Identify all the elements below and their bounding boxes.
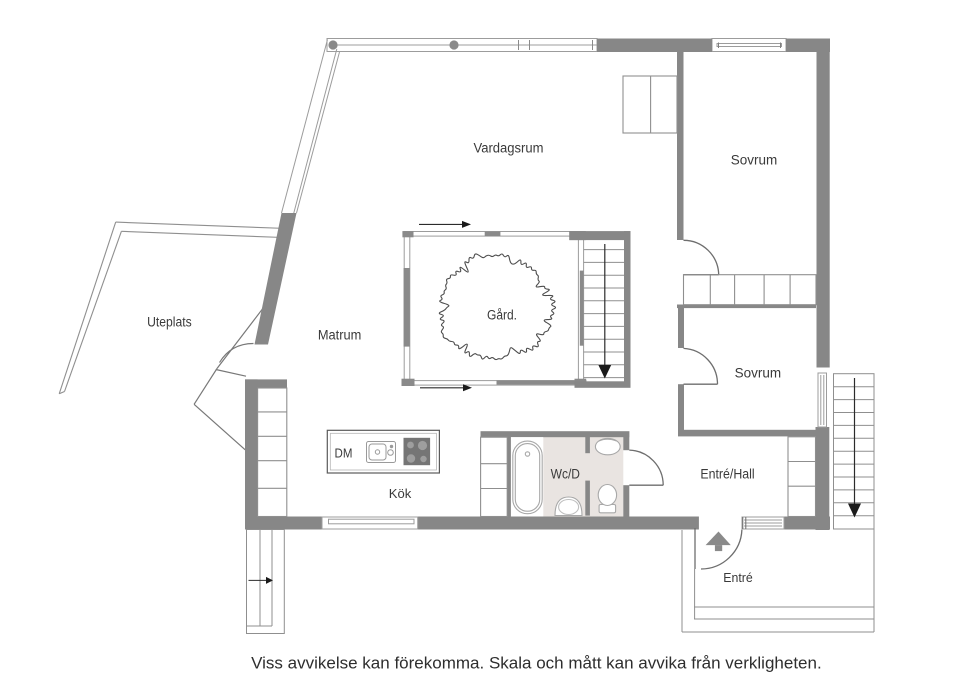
svg-text:Entré: Entré xyxy=(723,571,753,585)
svg-text:Sovrum: Sovrum xyxy=(731,153,778,168)
svg-text:Viss avvikelse kan förekomma.: Viss avvikelse kan förekomma. Skala och … xyxy=(251,654,822,673)
svg-text:Wc/D: Wc/D xyxy=(551,467,581,482)
svg-text:Gård.: Gård. xyxy=(487,308,517,323)
svg-text:Kök: Kök xyxy=(389,486,412,501)
svg-text:DM: DM xyxy=(335,445,353,460)
svg-text:Uteplats: Uteplats xyxy=(147,315,192,330)
svg-text:Vardagsrum: Vardagsrum xyxy=(474,140,544,155)
svg-text:Sovrum: Sovrum xyxy=(735,366,782,381)
svg-text:Entré/Hall: Entré/Hall xyxy=(700,467,754,482)
svg-text:Matrum: Matrum xyxy=(318,327,362,342)
